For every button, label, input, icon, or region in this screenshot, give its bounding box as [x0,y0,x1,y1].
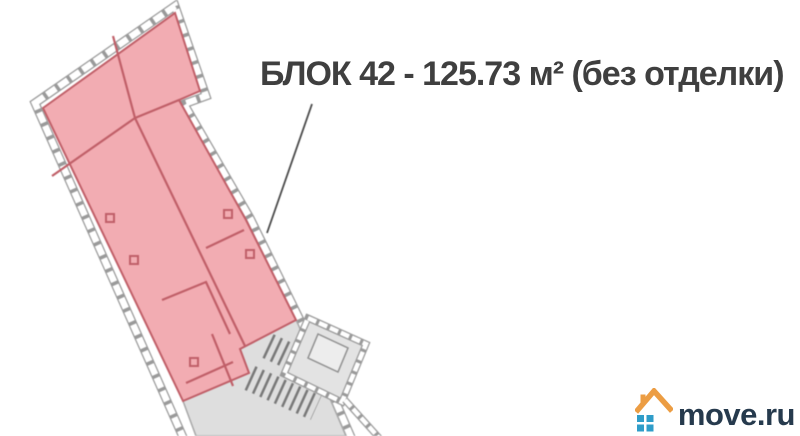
floorplan-figure[interactable]: БЛОК 42 - 125.73 м² (без отделки) move.r… [0,0,800,436]
leader-line [267,104,312,233]
window-squares-icon [637,415,654,432]
move-ru-logo[interactable]: move.ru [635,388,795,433]
logo-text: move.ru [678,399,795,433]
house-icon [635,388,673,433]
house-roof-icon [636,391,672,412]
block-label: БЛОК 42 - 125.73 м² (без отделки) [260,56,784,92]
